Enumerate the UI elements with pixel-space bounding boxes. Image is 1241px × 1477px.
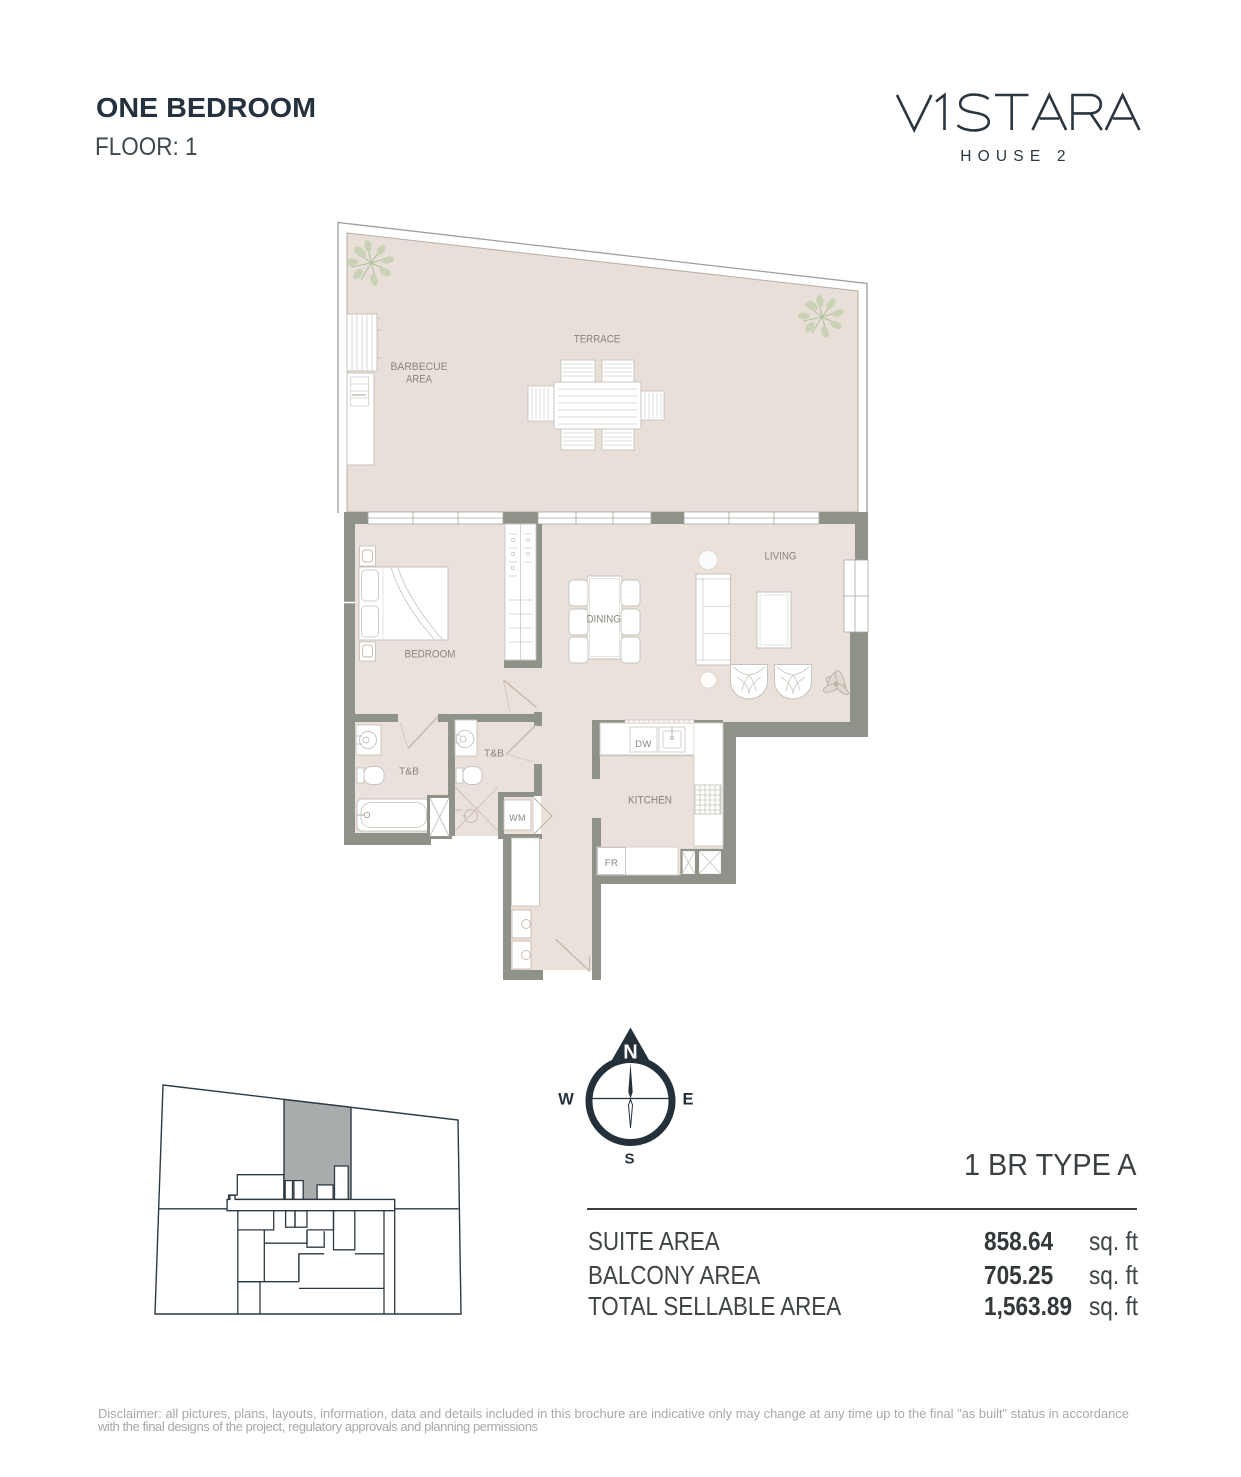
- svg-text:T&B: T&B: [399, 767, 419, 778]
- svg-text:S: S: [624, 1151, 634, 1168]
- svg-text:AREA: AREA: [406, 374, 433, 386]
- svg-text:FR: FR: [605, 858, 618, 869]
- svg-text:T&B: T&B: [484, 749, 504, 760]
- svg-text:BEDROOM: BEDROOM: [405, 649, 456, 661]
- svg-text:E: E: [682, 1091, 693, 1109]
- svg-text:DINING: DINING: [586, 614, 621, 626]
- svg-text:BARBECUE: BARBECUE: [391, 361, 448, 373]
- svg-text:KITCHEN: KITCHEN: [628, 795, 672, 807]
- svg-text:DW: DW: [635, 739, 652, 750]
- svg-text:TERRACE: TERRACE: [574, 334, 621, 346]
- svg-text:N: N: [623, 1042, 637, 1064]
- svg-text:W: W: [558, 1091, 574, 1109]
- svg-text:WM: WM: [509, 813, 526, 823]
- svg-text:LIVING: LIVING: [765, 551, 797, 563]
